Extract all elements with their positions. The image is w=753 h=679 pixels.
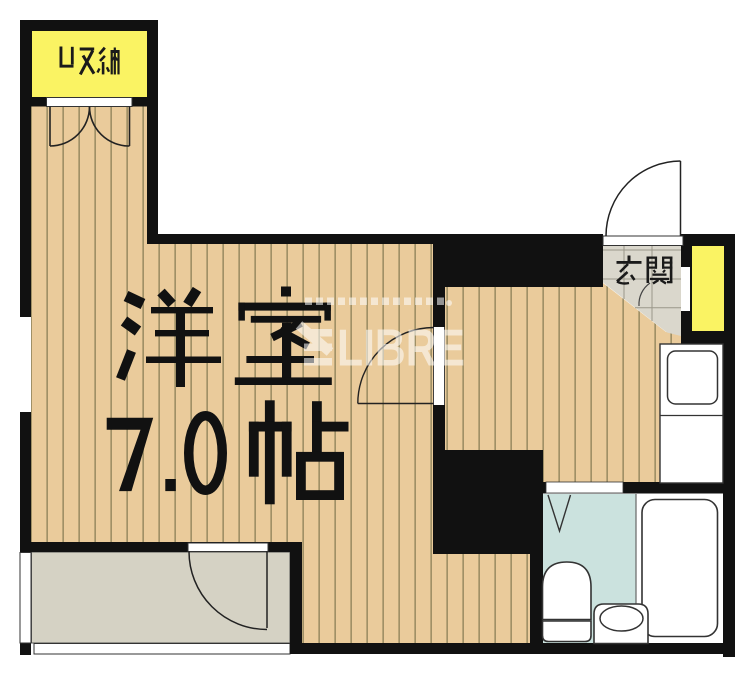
svg-text:LIBRE: LIBRE (337, 320, 465, 378)
